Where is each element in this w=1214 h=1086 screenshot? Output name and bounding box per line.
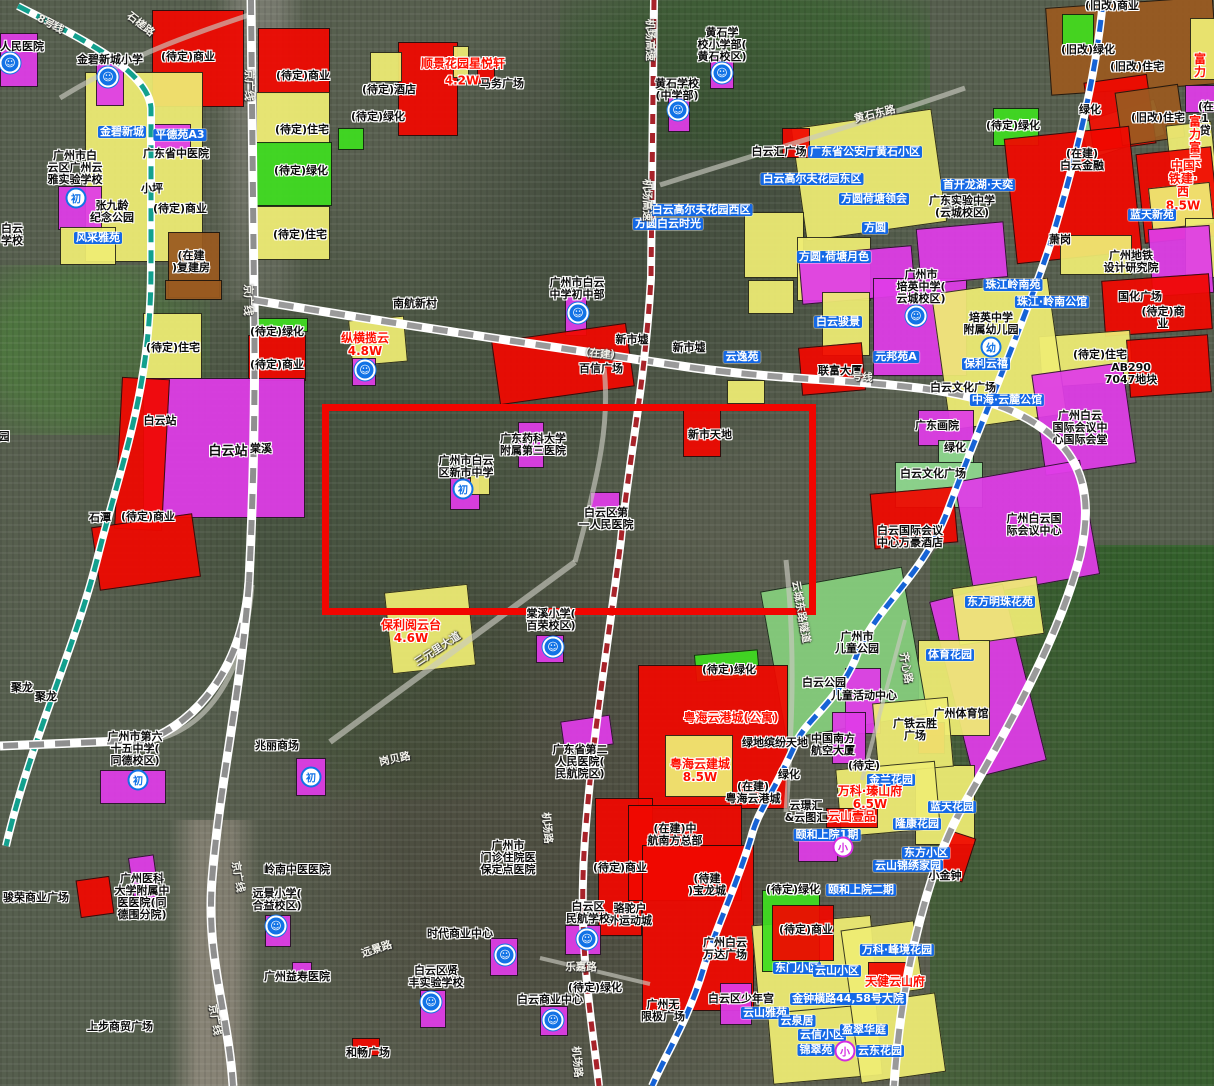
school-icon: ☺ xyxy=(421,992,442,1013)
chu-icon: 初 xyxy=(66,188,87,209)
chu-icon: 初 xyxy=(453,479,474,500)
school-icon: ☺ xyxy=(568,303,589,324)
school-icon: ☺ xyxy=(577,929,598,950)
chu-icon: 初 xyxy=(301,767,322,788)
school-icon: ☺ xyxy=(712,63,733,84)
map-root[interactable]: 人民医院金碧新城小学(待定)商业(待定)商业(待定)酒店(待定)绿化(待定)住宅… xyxy=(0,0,1214,1086)
school-icon: ☺ xyxy=(0,53,21,74)
school-icon: ☺ xyxy=(543,1010,564,1031)
xiao-icon: 小 xyxy=(835,1041,856,1062)
school-icon: ☺ xyxy=(543,637,564,658)
school-icon: ☺ xyxy=(906,306,927,327)
school-icon: ☺ xyxy=(266,916,287,937)
you-icon: 幼 xyxy=(981,337,1002,358)
school-icon: ☺ xyxy=(495,945,516,966)
chu-icon: 初 xyxy=(128,770,149,791)
school-icon: ☺ xyxy=(355,360,376,381)
poi-icon-layer: ☺☺初☺☺☺☺☺幼初☺初初☺☺☺☺☺小小 xyxy=(0,0,1214,1086)
school-icon: ☺ xyxy=(668,100,689,121)
xiao-icon: 小 xyxy=(833,837,854,858)
school-icon: ☺ xyxy=(98,67,119,88)
